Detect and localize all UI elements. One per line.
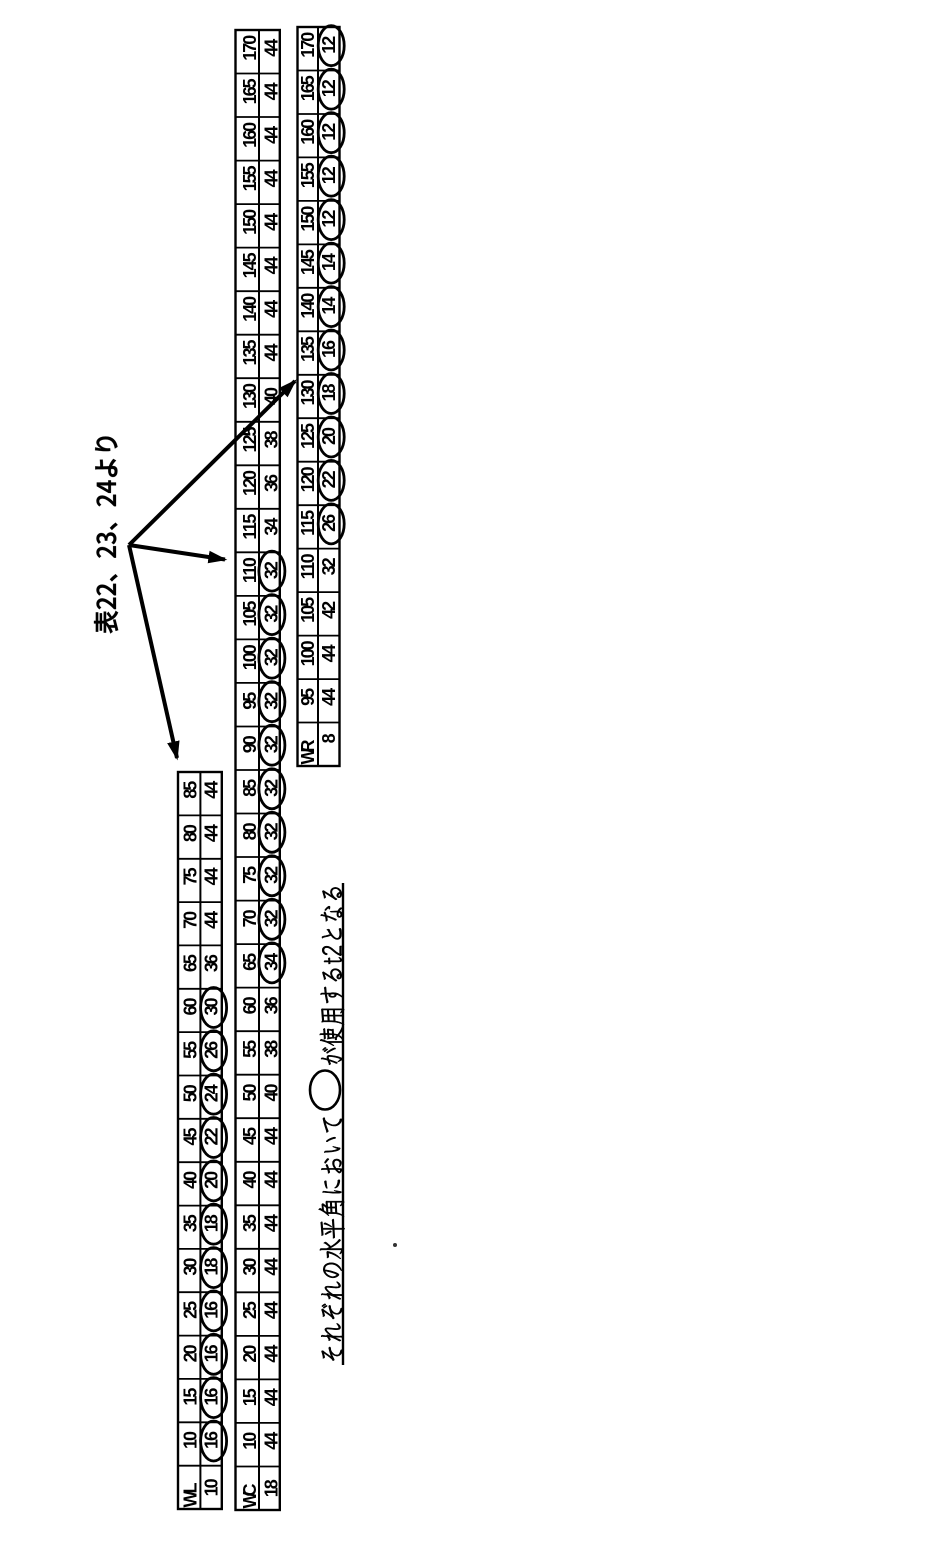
svg-text:95: 95 bbox=[240, 692, 260, 710]
svg-text:30: 30 bbox=[181, 1258, 201, 1276]
svg-text:38: 38 bbox=[261, 431, 281, 449]
svg-text:44: 44 bbox=[319, 688, 339, 706]
svg-text:12: 12 bbox=[319, 210, 339, 228]
svg-text:155: 155 bbox=[298, 162, 318, 188]
svg-text:44: 44 bbox=[261, 82, 281, 100]
svg-text:80: 80 bbox=[240, 822, 260, 840]
svg-text:44: 44 bbox=[261, 344, 281, 362]
svg-text:140: 140 bbox=[240, 296, 260, 322]
svg-text:44: 44 bbox=[261, 300, 281, 318]
svg-text:16: 16 bbox=[202, 1301, 222, 1319]
svg-text:60: 60 bbox=[181, 998, 201, 1016]
svg-text:44: 44 bbox=[202, 867, 222, 885]
svg-text:10: 10 bbox=[202, 1478, 222, 1496]
svg-text:45: 45 bbox=[181, 1128, 201, 1146]
svg-text:105: 105 bbox=[240, 601, 260, 627]
svg-text:18: 18 bbox=[261, 1479, 281, 1497]
svg-text:100: 100 bbox=[298, 640, 318, 666]
svg-text:50: 50 bbox=[240, 1084, 260, 1102]
svg-text:8: 8 bbox=[319, 733, 339, 743]
svg-text:44: 44 bbox=[261, 1388, 281, 1406]
svg-text:44: 44 bbox=[261, 1171, 281, 1189]
svg-text:150: 150 bbox=[298, 206, 318, 232]
svg-text:105: 105 bbox=[298, 597, 318, 623]
svg-text:44: 44 bbox=[261, 213, 281, 231]
svg-text:34: 34 bbox=[261, 953, 281, 971]
svg-text:110: 110 bbox=[298, 553, 318, 579]
svg-text:140: 140 bbox=[298, 293, 318, 319]
svg-text:36: 36 bbox=[261, 474, 281, 492]
svg-text:26: 26 bbox=[202, 1041, 222, 1059]
svg-text:42: 42 bbox=[319, 601, 339, 619]
svg-text:75: 75 bbox=[240, 866, 260, 884]
svg-text:22: 22 bbox=[202, 1128, 222, 1146]
svg-text:16: 16 bbox=[202, 1344, 222, 1362]
svg-text:35: 35 bbox=[240, 1214, 260, 1232]
svg-text:32: 32 bbox=[261, 561, 281, 579]
svg-text:50: 50 bbox=[181, 1084, 201, 1102]
svg-text:32: 32 bbox=[261, 735, 281, 753]
svg-text:45: 45 bbox=[240, 1127, 260, 1145]
svg-text:25: 25 bbox=[240, 1301, 260, 1319]
svg-text:16: 16 bbox=[202, 1388, 222, 1406]
svg-text:120: 120 bbox=[240, 470, 260, 496]
svg-text:110: 110 bbox=[240, 557, 260, 583]
svg-text:170: 170 bbox=[240, 35, 260, 61]
svg-text:130: 130 bbox=[298, 380, 318, 406]
svg-text:115: 115 bbox=[298, 510, 318, 536]
svg-text:32: 32 bbox=[261, 692, 281, 710]
svg-text:145: 145 bbox=[240, 252, 260, 278]
svg-text:155: 155 bbox=[240, 165, 260, 191]
svg-text:44: 44 bbox=[202, 911, 222, 929]
svg-text:170: 170 bbox=[298, 32, 318, 58]
svg-text:30: 30 bbox=[240, 1258, 260, 1276]
svg-text:20: 20 bbox=[181, 1344, 201, 1362]
svg-text:44: 44 bbox=[261, 1127, 281, 1145]
svg-text:16: 16 bbox=[202, 1431, 222, 1449]
svg-text:15: 15 bbox=[181, 1388, 201, 1406]
svg-text:18: 18 bbox=[319, 384, 339, 402]
svg-text:32: 32 bbox=[261, 779, 281, 797]
svg-text:44: 44 bbox=[261, 1301, 281, 1319]
svg-text:40: 40 bbox=[181, 1171, 201, 1189]
svg-text:32: 32 bbox=[261, 648, 281, 666]
svg-text:90: 90 bbox=[240, 735, 260, 753]
svg-text:44: 44 bbox=[202, 781, 222, 799]
svg-text:12: 12 bbox=[319, 36, 339, 54]
svg-text:135: 135 bbox=[240, 340, 260, 366]
svg-text:18: 18 bbox=[202, 1258, 222, 1276]
svg-text:125: 125 bbox=[298, 423, 318, 449]
svg-text:WL: WL bbox=[181, 1483, 201, 1508]
svg-text:16: 16 bbox=[319, 340, 339, 358]
svg-text:160: 160 bbox=[298, 119, 318, 145]
svg-text:160: 160 bbox=[240, 122, 260, 148]
svg-text:32: 32 bbox=[261, 866, 281, 884]
svg-text:20: 20 bbox=[240, 1345, 260, 1363]
svg-text:70: 70 bbox=[181, 911, 201, 929]
svg-text:44: 44 bbox=[261, 256, 281, 274]
svg-text:44: 44 bbox=[319, 644, 339, 662]
svg-text:32: 32 bbox=[319, 557, 339, 575]
svg-text:44: 44 bbox=[261, 1214, 281, 1232]
svg-text:WC: WC bbox=[240, 1484, 260, 1509]
svg-text:24: 24 bbox=[202, 1084, 222, 1102]
svg-text:35: 35 bbox=[181, 1214, 201, 1232]
svg-text:44: 44 bbox=[261, 169, 281, 187]
svg-text:44: 44 bbox=[261, 39, 281, 57]
svg-text:44: 44 bbox=[261, 126, 281, 144]
svg-text:115: 115 bbox=[240, 514, 260, 540]
svg-text:10: 10 bbox=[181, 1431, 201, 1449]
svg-text:34: 34 bbox=[261, 518, 281, 536]
svg-text:60: 60 bbox=[240, 996, 260, 1014]
svg-text:95: 95 bbox=[298, 688, 318, 706]
svg-text:44: 44 bbox=[261, 1345, 281, 1363]
svg-text:20: 20 bbox=[319, 427, 339, 445]
svg-text:40: 40 bbox=[240, 1171, 260, 1189]
svg-text:36: 36 bbox=[261, 996, 281, 1014]
svg-text:38: 38 bbox=[261, 1040, 281, 1058]
svg-text:26: 26 bbox=[319, 514, 339, 532]
svg-text:32: 32 bbox=[261, 605, 281, 623]
svg-text:44: 44 bbox=[202, 824, 222, 842]
svg-text:65: 65 bbox=[181, 954, 201, 972]
svg-text:85: 85 bbox=[240, 779, 260, 797]
svg-text:18: 18 bbox=[202, 1214, 222, 1232]
svg-text:70: 70 bbox=[240, 909, 260, 927]
svg-text:135: 135 bbox=[298, 336, 318, 362]
svg-text:WR: WR bbox=[298, 740, 318, 765]
svg-text:165: 165 bbox=[240, 78, 260, 104]
svg-text:44: 44 bbox=[261, 1432, 281, 1450]
svg-text:120: 120 bbox=[298, 466, 318, 492]
svg-text:145: 145 bbox=[298, 249, 318, 275]
svg-text:22: 22 bbox=[319, 470, 339, 488]
svg-text:85: 85 bbox=[181, 781, 201, 799]
svg-text:10: 10 bbox=[240, 1432, 260, 1450]
svg-text:32: 32 bbox=[261, 822, 281, 840]
svg-text:165: 165 bbox=[298, 75, 318, 101]
svg-text:12: 12 bbox=[319, 123, 339, 141]
svg-text:32: 32 bbox=[261, 909, 281, 927]
svg-text:44: 44 bbox=[261, 1258, 281, 1276]
svg-text:14: 14 bbox=[319, 297, 339, 315]
svg-text:36: 36 bbox=[202, 954, 222, 972]
svg-text:75: 75 bbox=[181, 867, 201, 885]
svg-text:15: 15 bbox=[240, 1388, 260, 1406]
svg-text:65: 65 bbox=[240, 953, 260, 971]
svg-text:14: 14 bbox=[319, 253, 339, 271]
svg-text:30: 30 bbox=[202, 998, 222, 1016]
svg-text:130: 130 bbox=[240, 383, 260, 409]
svg-text:55: 55 bbox=[240, 1040, 260, 1058]
svg-text:12: 12 bbox=[319, 79, 339, 97]
svg-text:80: 80 bbox=[181, 824, 201, 842]
svg-text:25: 25 bbox=[181, 1301, 201, 1319]
svg-text:40: 40 bbox=[261, 1084, 281, 1102]
svg-text:12: 12 bbox=[319, 166, 339, 184]
svg-text:20: 20 bbox=[202, 1171, 222, 1189]
svg-text:150: 150 bbox=[240, 209, 260, 235]
svg-text:100: 100 bbox=[240, 644, 260, 670]
svg-text:55: 55 bbox=[181, 1041, 201, 1059]
